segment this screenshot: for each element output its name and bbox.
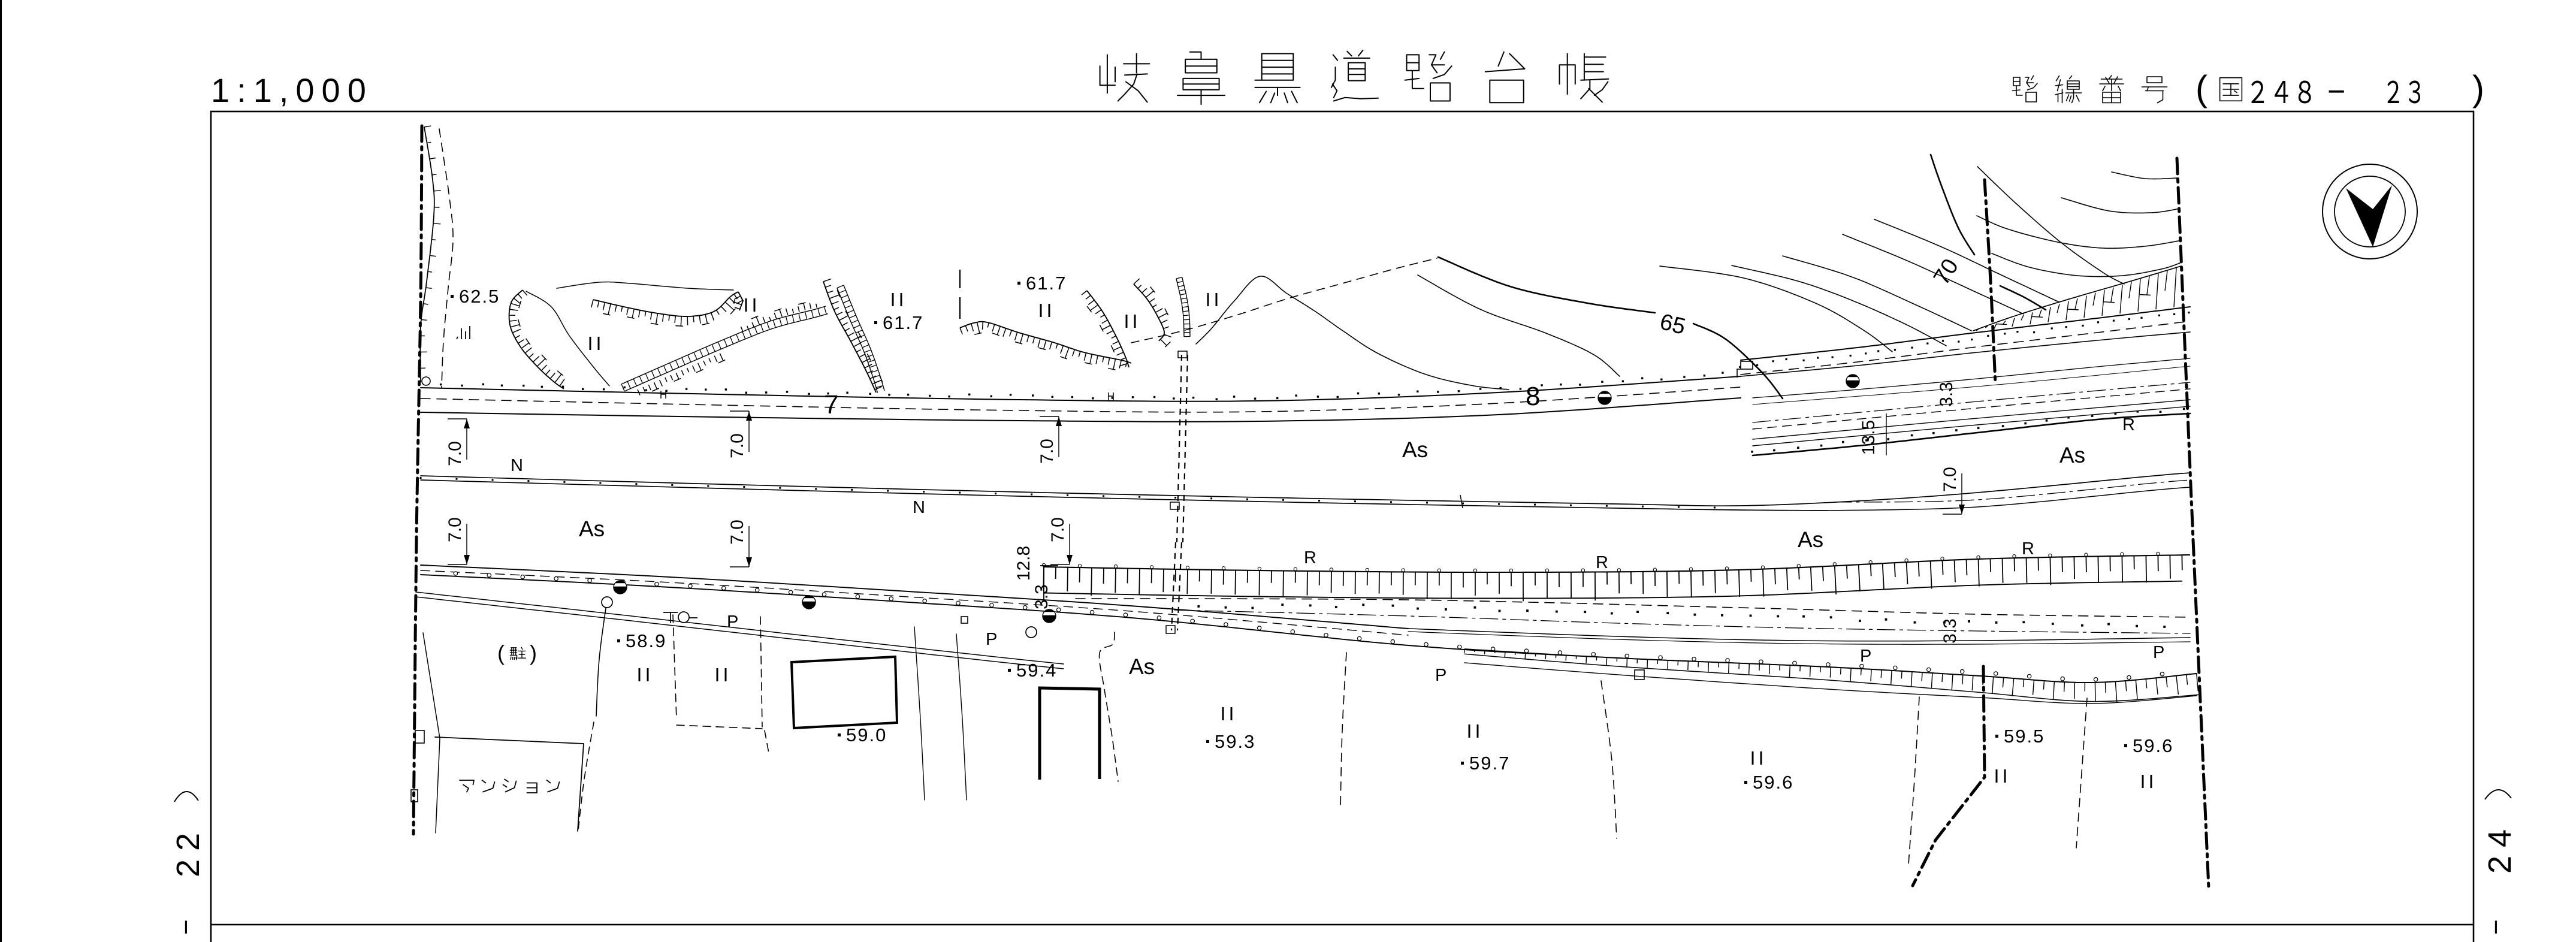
svg-text:7.0: 7.0 — [1037, 439, 1057, 464]
svg-text:As: As — [1798, 527, 1823, 552]
svg-text:22: 22 — [170, 825, 206, 877]
svg-text:12.8: 12.8 — [1014, 546, 1034, 581]
svg-text:7.0: 7.0 — [727, 520, 747, 545]
svg-text:7.0: 7.0 — [445, 517, 465, 542]
svg-text:P: P — [1860, 647, 1871, 666]
svg-text:3.3: 3.3 — [1937, 382, 1956, 407]
svg-text:1:1,000: 1:1,000 — [211, 71, 373, 109]
svg-text:２３: ２３ — [2382, 76, 2426, 110]
svg-text:): ) — [530, 641, 537, 665]
svg-text:As: As — [2059, 443, 2085, 467]
svg-text:58.9: 58.9 — [626, 630, 666, 651]
svg-text:R: R — [1304, 548, 1316, 567]
svg-text:59.0: 59.0 — [846, 724, 887, 745]
svg-text:２４８: ２４８ — [2246, 76, 2317, 110]
svg-text:N: N — [511, 456, 523, 475]
svg-text:R: R — [1596, 553, 1608, 572]
svg-text:7.0: 7.0 — [445, 441, 465, 466]
svg-text:−: − — [2481, 919, 2511, 935]
svg-text:(: ( — [497, 641, 505, 665]
svg-text:P: P — [986, 630, 997, 649]
svg-text:R: R — [2022, 539, 2034, 558]
svg-text:): ) — [2472, 68, 2484, 108]
svg-text:R: R — [2122, 415, 2135, 434]
svg-text:59.4: 59.4 — [1016, 660, 1057, 681]
svg-text:N: N — [913, 498, 925, 517]
svg-text:7.0: 7.0 — [1940, 467, 1960, 492]
svg-text:(: ( — [2196, 68, 2207, 108]
svg-text:As: As — [579, 517, 605, 541]
svg-text:61.7: 61.7 — [883, 312, 923, 333]
svg-text:59.5: 59.5 — [2004, 726, 2045, 747]
svg-text:P: P — [1435, 666, 1446, 685]
svg-text:7.0: 7.0 — [727, 433, 747, 458]
svg-text:As: As — [1402, 437, 1428, 462]
svg-text:3.3: 3.3 — [1032, 584, 1052, 609]
svg-text:7: 7 — [824, 390, 838, 419]
svg-text:24: 24 — [2482, 821, 2518, 874]
svg-text:3.3: 3.3 — [1940, 618, 1960, 644]
svg-text:8: 8 — [1526, 382, 1540, 411]
svg-text:As: As — [1129, 654, 1155, 679]
svg-text:7.0: 7.0 — [1048, 517, 1068, 542]
svg-text:59.6: 59.6 — [1753, 772, 1793, 793]
svg-text:−: − — [171, 919, 201, 935]
svg-text:P: P — [727, 612, 738, 632]
svg-text:59.3: 59.3 — [1215, 731, 1255, 752]
svg-text:13.5: 13.5 — [1859, 420, 1879, 455]
svg-text:59.6: 59.6 — [2133, 735, 2173, 756]
svg-text:P: P — [2153, 643, 2164, 662]
svg-text:62.5: 62.5 — [459, 286, 500, 307]
svg-text:61.7: 61.7 — [1026, 273, 1067, 294]
svg-text:−: − — [2327, 74, 2345, 109]
svg-text:59.7: 59.7 — [1469, 753, 1510, 774]
